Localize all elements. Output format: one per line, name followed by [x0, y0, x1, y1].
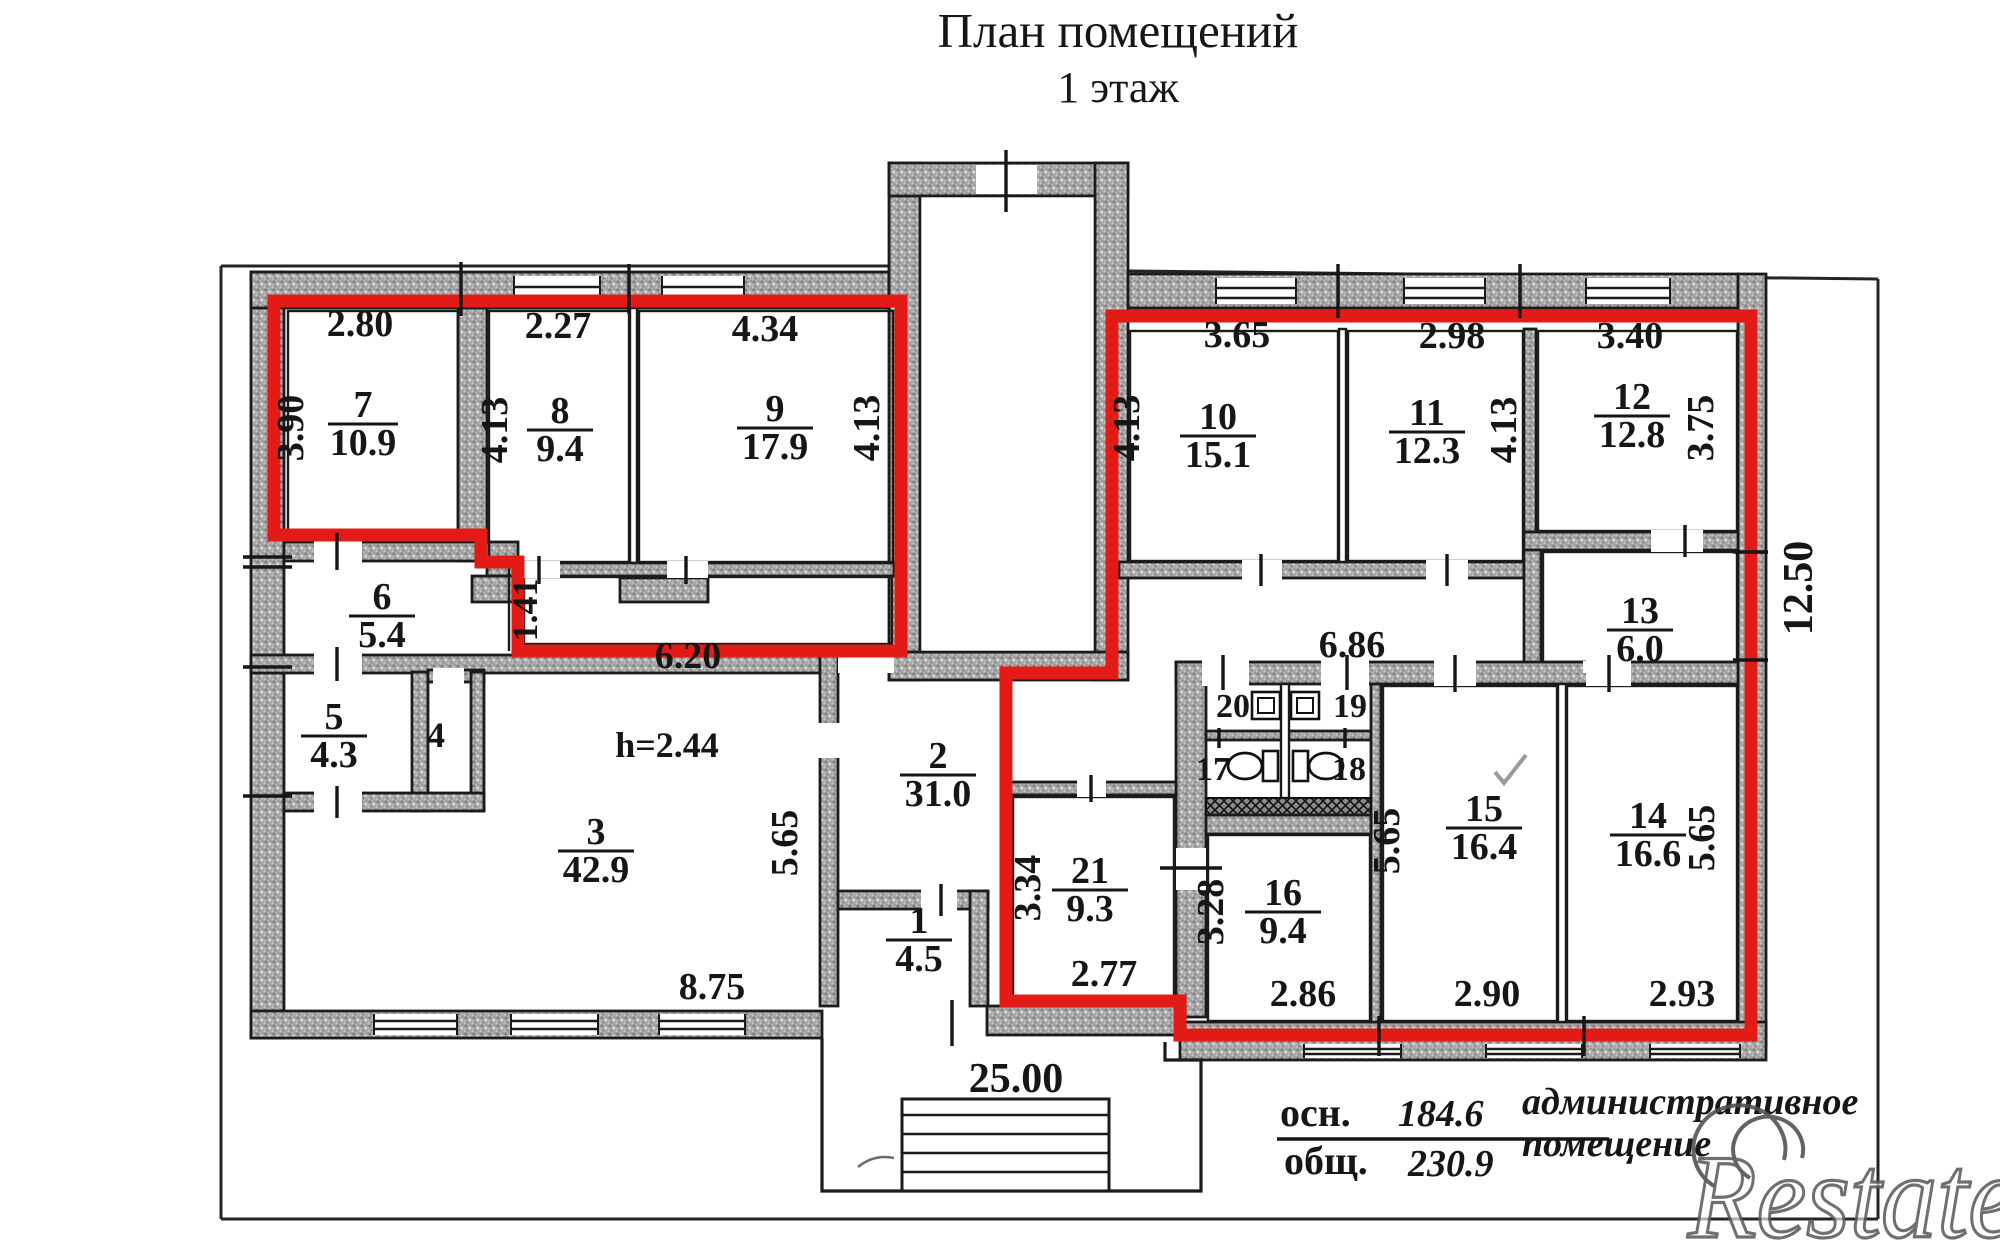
svg-text:общ.: общ. — [1284, 1138, 1368, 1183]
svg-text:10.9: 10.9 — [330, 422, 397, 464]
svg-text:6.86: 6.86 — [1319, 624, 1386, 666]
svg-text:4.13: 4.13 — [1483, 397, 1525, 464]
svg-text:9: 9 — [766, 388, 785, 430]
svg-text:8: 8 — [551, 390, 570, 432]
svg-text:2.98: 2.98 — [1419, 315, 1486, 357]
svg-text:h=2.44: h=2.44 — [615, 725, 719, 765]
svg-text:административное: административное — [1522, 1081, 1858, 1123]
svg-text:5: 5 — [325, 696, 344, 738]
svg-text:План помещений: План помещений — [938, 3, 1299, 58]
svg-text:6.20: 6.20 — [655, 635, 722, 677]
svg-text:5.65: 5.65 — [764, 810, 806, 877]
svg-text:3: 3 — [587, 811, 606, 853]
svg-text:10: 10 — [1199, 396, 1237, 438]
svg-text:9.4: 9.4 — [1259, 910, 1307, 952]
svg-text:16.4: 16.4 — [1451, 826, 1518, 868]
svg-text:2.80: 2.80 — [327, 303, 394, 345]
svg-text:2.27: 2.27 — [525, 305, 592, 347]
svg-text:8.75: 8.75 — [679, 966, 746, 1008]
svg-text:31.0: 31.0 — [905, 773, 972, 815]
svg-text:5.65: 5.65 — [1681, 805, 1723, 872]
svg-text:3.75: 3.75 — [1680, 395, 1722, 462]
svg-text:3.28: 3.28 — [1190, 879, 1232, 946]
svg-text:4.5: 4.5 — [895, 938, 943, 980]
svg-text:1: 1 — [910, 900, 929, 942]
svg-text:230.9: 230.9 — [1407, 1143, 1494, 1185]
svg-text:4: 4 — [427, 715, 445, 755]
svg-text:2.93: 2.93 — [1649, 973, 1716, 1015]
svg-text:15.1: 15.1 — [1185, 434, 1252, 476]
svg-text:12.3: 12.3 — [1394, 430, 1461, 472]
svg-text:7: 7 — [354, 384, 373, 426]
svg-text:6.0: 6.0 — [1616, 628, 1664, 670]
svg-text:5.65: 5.65 — [1366, 808, 1408, 875]
svg-text:20: 20 — [1216, 688, 1250, 725]
svg-text:6: 6 — [373, 576, 392, 618]
svg-text:2.90: 2.90 — [1454, 973, 1521, 1015]
svg-text:14: 14 — [1629, 795, 1667, 837]
svg-text:2: 2 — [929, 735, 948, 777]
svg-text:19: 19 — [1333, 688, 1367, 725]
svg-text:4.13: 4.13 — [846, 395, 888, 462]
svg-text:4.13: 4.13 — [474, 397, 516, 464]
svg-text:9.4: 9.4 — [536, 428, 584, 470]
svg-text:3.40: 3.40 — [1597, 315, 1664, 357]
svg-text:9.3: 9.3 — [1066, 888, 1114, 930]
svg-text:16: 16 — [1264, 872, 1302, 914]
svg-text:25.00: 25.00 — [969, 1056, 1064, 1102]
svg-text:15: 15 — [1465, 788, 1503, 830]
svg-text:3.34: 3.34 — [1007, 855, 1049, 922]
svg-text:18: 18 — [1332, 751, 1366, 788]
svg-text:2.86: 2.86 — [1270, 973, 1337, 1015]
svg-text:12.8: 12.8 — [1599, 414, 1666, 456]
svg-text:3.90: 3.90 — [270, 395, 312, 462]
svg-text:4.13: 4.13 — [1106, 395, 1148, 462]
svg-text:12.50: 12.50 — [1776, 541, 1822, 636]
svg-text:2.77: 2.77 — [1071, 953, 1138, 995]
svg-text:4.34: 4.34 — [732, 308, 799, 350]
svg-text:17: 17 — [1196, 751, 1230, 788]
svg-text:5.4: 5.4 — [358, 614, 406, 656]
svg-text:13: 13 — [1621, 590, 1659, 632]
svg-text:17.9: 17.9 — [742, 426, 809, 468]
svg-text:42.9: 42.9 — [563, 849, 630, 891]
svg-text:помещение: помещение — [1522, 1123, 1711, 1165]
svg-text:11: 11 — [1409, 392, 1445, 434]
svg-text:4.3: 4.3 — [310, 734, 358, 776]
svg-text:3.65: 3.65 — [1204, 314, 1271, 356]
svg-text:184.6: 184.6 — [1398, 1093, 1484, 1135]
svg-text:осн.: осн. — [1280, 1090, 1351, 1135]
svg-text:21: 21 — [1071, 850, 1109, 892]
svg-text:12: 12 — [1613, 376, 1651, 418]
svg-text:16.6: 16.6 — [1615, 833, 1682, 875]
svg-text:1 этаж: 1 этаж — [1057, 63, 1179, 112]
svg-text:1.41: 1.41 — [505, 579, 545, 642]
